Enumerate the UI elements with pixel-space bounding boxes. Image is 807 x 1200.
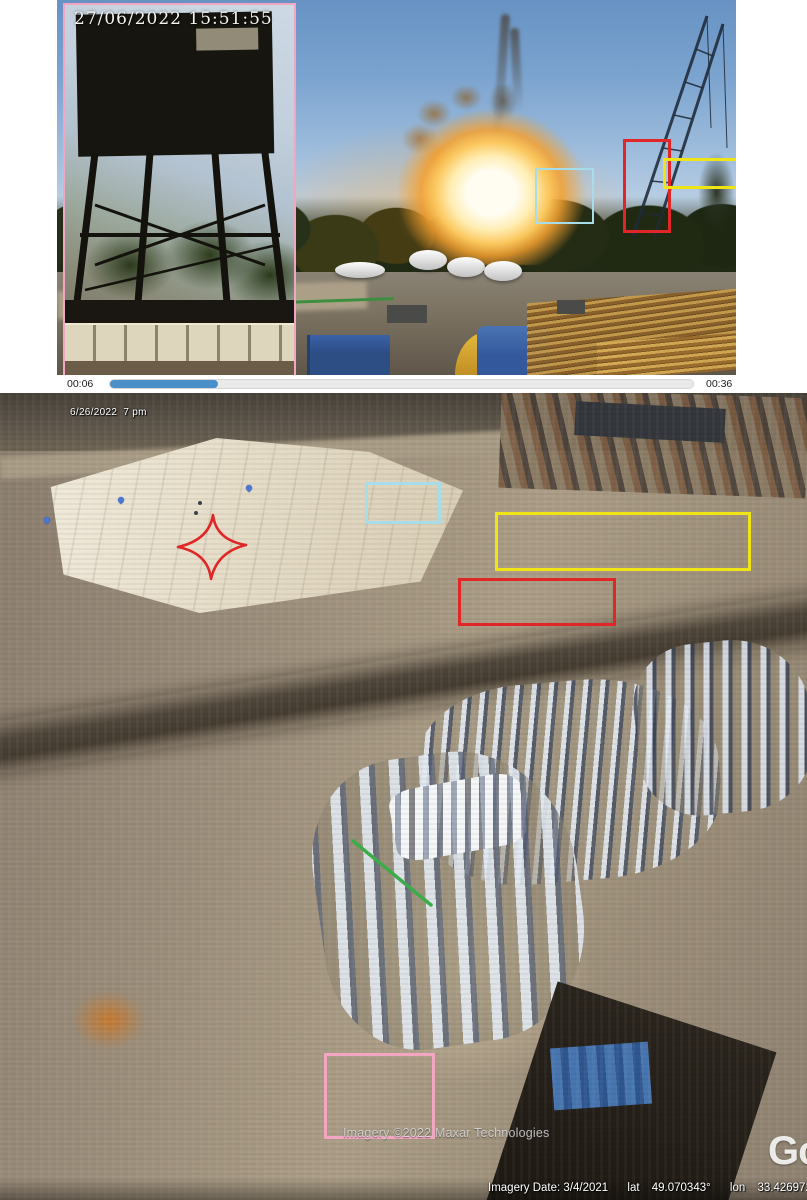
status-lon-label: lon — [730, 1182, 745, 1194]
video-progress-bar[interactable] — [109, 379, 694, 389]
video-elapsed-time: 00:06 — [67, 378, 103, 390]
video-frame[interactable]: 27/06/2022 15:51:55 — [57, 0, 736, 375]
shed — [557, 300, 585, 314]
imagery-date-text: 6/26/2022 — [70, 407, 117, 418]
historical-imagery-date-label: 6/26/2022 7 pm — [70, 407, 147, 418]
pink-inset-box: 27/06/2022 15:51:55 — [63, 3, 296, 375]
cyan-annotation-box — [535, 168, 594, 224]
roof-dot — [198, 501, 202, 505]
storage-tank — [409, 250, 447, 270]
yellow-annotation-box — [495, 512, 751, 571]
storage-tank — [484, 261, 522, 281]
yellow-annotation-box — [663, 158, 736, 189]
building-cluster — [627, 632, 807, 821]
satellite-map-viewport[interactable]: 6/26/2022 7 pm Imagery ©2022 Maxar Techn… — [0, 393, 807, 1200]
map-status-bar: Imagery Date: 3/4/2021 lat 49.070343° lo… — [0, 1178, 807, 1200]
status-lat-label: lat — [627, 1182, 639, 1194]
status-imagery-date: Imagery Date: 3/4/2021 — [488, 1182, 608, 1194]
red-annotation-box — [458, 578, 616, 626]
green-line-annotation — [350, 838, 435, 908]
red-star-marker — [176, 513, 248, 581]
ground — [65, 361, 294, 375]
star-icon — [178, 515, 246, 579]
placemark-icon — [43, 516, 51, 524]
video-timestamp: 27/06/2022 15:51:55 — [74, 9, 273, 29]
shed — [387, 305, 427, 323]
orange-patch — [72, 991, 146, 1049]
maxar-watermark: Imagery ©2022 Maxar Technologies — [343, 1126, 549, 1140]
storage-tank — [335, 262, 385, 278]
video-controls: 00:06 00:36 — [57, 375, 736, 393]
video-duration: 00:36 — [706, 378, 742, 390]
status-lon-value: 33.426972° — [757, 1182, 807, 1194]
screenshot-root: 27/06/2022 15:51:55 00:06 00:36 — [0, 0, 807, 1200]
video-progress-fill — [110, 380, 218, 388]
storage-tank — [447, 257, 485, 277]
container-row — [65, 323, 294, 365]
blue-container — [307, 335, 390, 375]
imagery-time-text: 7 pm — [123, 407, 146, 418]
google-logo-watermark: Go — [768, 1129, 807, 1174]
blue-container-stack — [550, 1042, 652, 1111]
cyan-annotation-box — [365, 482, 441, 524]
status-lat-value: 49.070343° — [652, 1182, 711, 1194]
